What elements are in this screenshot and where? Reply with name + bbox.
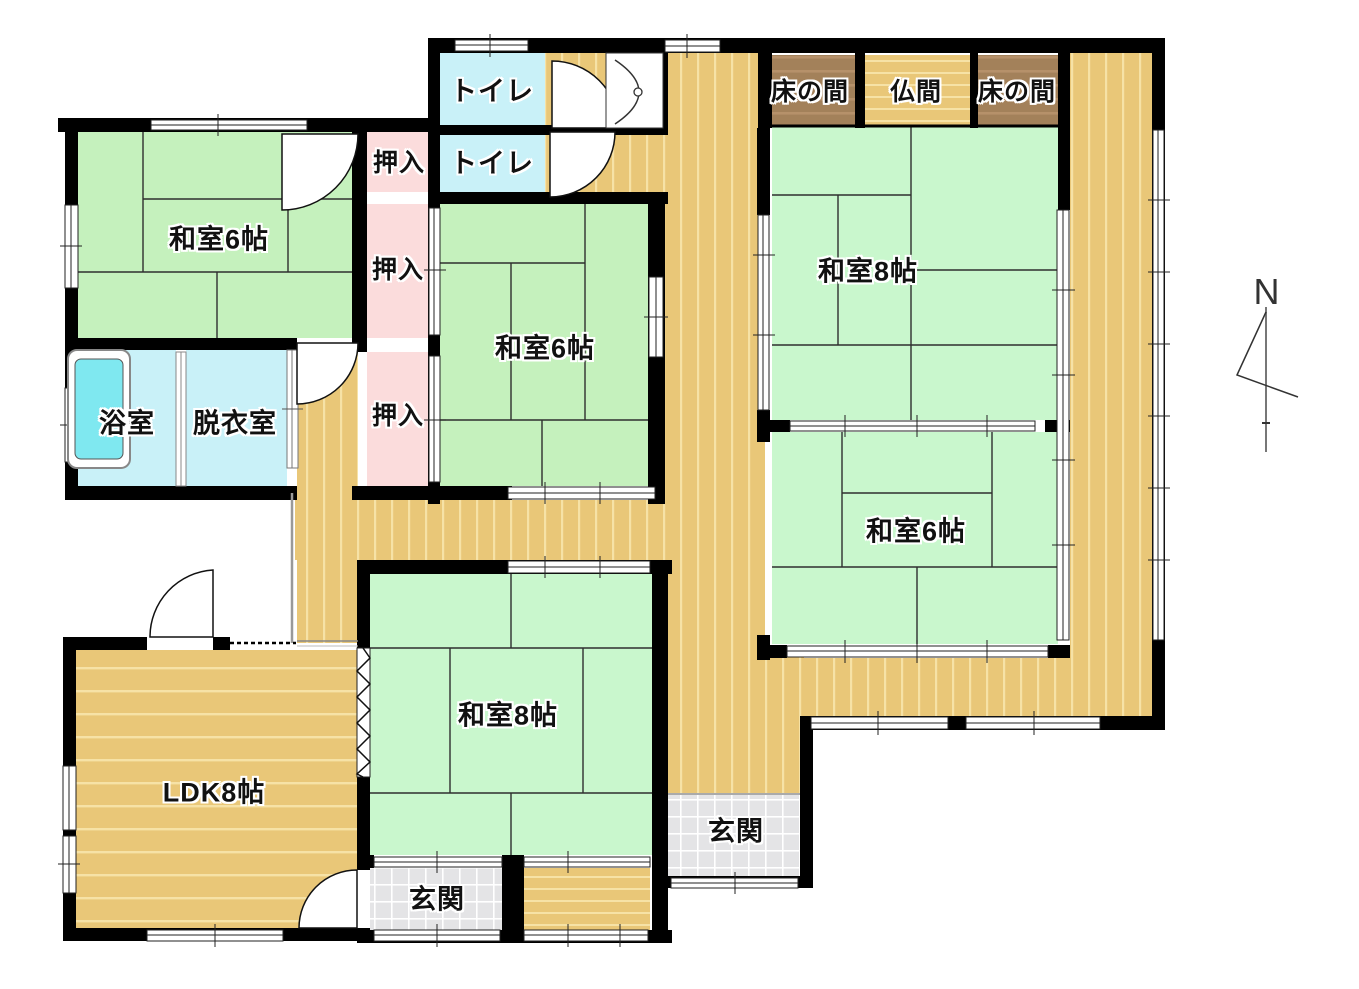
- label-washitsu6-nw: 和室6帖: [169, 218, 269, 257]
- label-genkan-east: 玄関: [708, 810, 764, 849]
- label-butsuma: 仏間: [890, 72, 942, 108]
- north-arrow: [1237, 307, 1298, 452]
- label-washitsu8-ne: 和室8帖: [818, 250, 918, 289]
- label-genkan-south: 玄関: [409, 878, 465, 917]
- label-tokonoma-left: 床の間: [771, 72, 849, 108]
- label-bath: 浴室: [99, 402, 155, 441]
- sink: [606, 53, 663, 128]
- floor-plan: トイレ トイレ 押入 押入 押入 和室6帖 和室6帖 和室8帖 和室6帖 和室8…: [0, 0, 1359, 989]
- label-closet-low: 押入: [372, 396, 424, 432]
- label-tokonoma-right: 床の間: [978, 72, 1056, 108]
- label-compass-north: N: [1254, 271, 1281, 313]
- label-toilet-upper: トイレ: [450, 70, 534, 109]
- label-washitsu6-center: 和室6帖: [495, 327, 595, 366]
- label-toilet-lower: トイレ: [450, 142, 534, 181]
- label-closet-top: 押入: [373, 143, 425, 179]
- accordion-partition: [357, 648, 370, 777]
- label-ldk: LDK8帖: [163, 771, 266, 810]
- label-washitsu8-south: 和室8帖: [458, 694, 558, 733]
- floorplan-drawing: [0, 0, 1359, 989]
- label-dressing: 脱衣室: [193, 402, 277, 441]
- label-closet-mid: 押入: [372, 250, 424, 286]
- label-washitsu6-east: 和室6帖: [866, 510, 966, 549]
- wood-strip-floor: [524, 868, 650, 930]
- door-ldk-north: [150, 570, 213, 637]
